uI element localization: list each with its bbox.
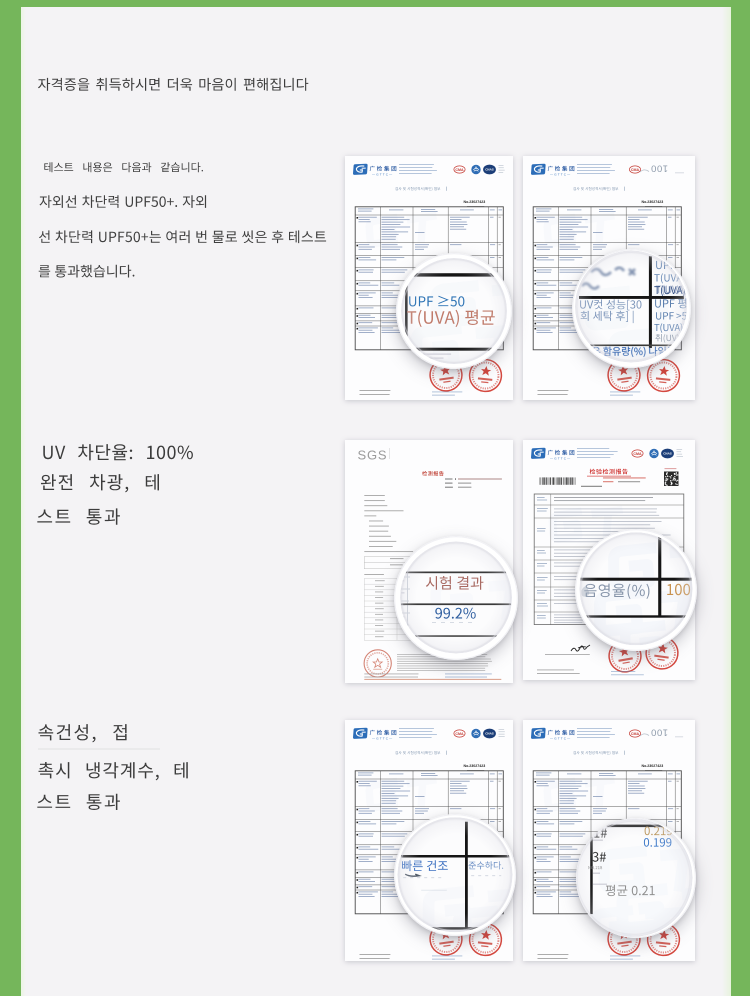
svg-text:—GTTC—: —GTTC— — [550, 457, 571, 461]
svg-text:SGS: SGS — [358, 448, 388, 463]
svg-text:100: 100 — [651, 163, 668, 174]
svg-text:100: 100 — [651, 727, 668, 738]
